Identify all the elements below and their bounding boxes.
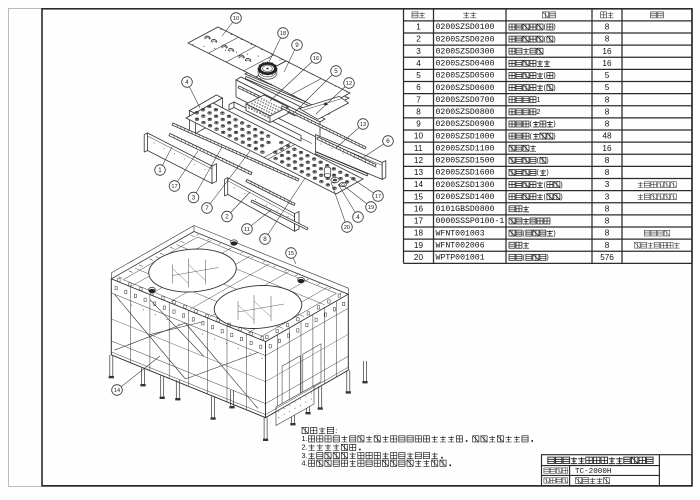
svg-text:0200SZSD0300: 0200SZSD0300 bbox=[436, 48, 495, 57]
svg-text:0200SZSD1600: 0200SZSD1600 bbox=[436, 169, 495, 178]
svg-text:0200SZSD1400: 0200SZSD1400 bbox=[436, 193, 495, 202]
svg-text:8: 8 bbox=[605, 241, 610, 250]
svg-text::: : bbox=[335, 426, 337, 435]
svg-text:8: 8 bbox=[605, 168, 610, 177]
svg-text:16: 16 bbox=[602, 144, 612, 153]
svg-text:5: 5 bbox=[334, 68, 338, 75]
svg-text:3: 3 bbox=[416, 47, 421, 56]
svg-text:): ) bbox=[553, 133, 555, 140]
svg-text:4: 4 bbox=[185, 79, 189, 86]
svg-text:8: 8 bbox=[605, 95, 610, 104]
svg-text:0200SZSD1300: 0200SZSD1300 bbox=[436, 181, 495, 190]
svg-text:11: 11 bbox=[244, 227, 250, 233]
svg-text:19: 19 bbox=[414, 241, 424, 250]
svg-text:0200SZSD0900: 0200SZSD0900 bbox=[436, 120, 495, 129]
svg-text:1: 1 bbox=[158, 167, 162, 174]
svg-text:): ) bbox=[553, 85, 555, 92]
svg-text:14: 14 bbox=[114, 388, 120, 394]
svg-text:): ) bbox=[546, 158, 548, 165]
svg-text:0200SZSD1500: 0200SZSD1500 bbox=[436, 157, 495, 166]
svg-text:1: 1 bbox=[537, 97, 541, 104]
svg-text:10: 10 bbox=[414, 132, 424, 141]
svg-text:3: 3 bbox=[192, 195, 196, 202]
svg-text:2: 2 bbox=[416, 35, 421, 44]
svg-text:): ) bbox=[560, 194, 562, 201]
svg-text:): ) bbox=[560, 182, 562, 189]
svg-text:13: 13 bbox=[414, 168, 424, 177]
svg-text:): ) bbox=[546, 170, 548, 177]
svg-text:0000SSSP0100-1: 0000SSSP0100-1 bbox=[436, 217, 505, 226]
svg-text:4.: 4. bbox=[302, 459, 308, 468]
svg-text:4: 4 bbox=[356, 214, 360, 221]
svg-text:0200SZSD0200: 0200SZSD0200 bbox=[436, 35, 495, 44]
svg-text:): ) bbox=[553, 73, 555, 80]
svg-text:16: 16 bbox=[602, 47, 612, 56]
svg-text:48: 48 bbox=[602, 132, 612, 141]
svg-text:0200SZSD1100: 0200SZSD1100 bbox=[436, 144, 495, 153]
svg-text:3: 3 bbox=[605, 192, 610, 201]
svg-text:WFNT002006: WFNT002006 bbox=[436, 241, 485, 250]
svg-text:): ) bbox=[553, 121, 555, 128]
svg-text:19: 19 bbox=[368, 205, 374, 211]
svg-text:): ) bbox=[553, 36, 555, 43]
svg-text:): ) bbox=[546, 255, 548, 262]
svg-text:0101GBSD0800: 0101GBSD0800 bbox=[436, 205, 495, 214]
svg-text:9: 9 bbox=[416, 120, 421, 129]
svg-text:16: 16 bbox=[313, 56, 319, 62]
svg-text:5: 5 bbox=[605, 83, 610, 92]
svg-text:8: 8 bbox=[605, 156, 610, 165]
svg-text:8: 8 bbox=[605, 229, 610, 238]
svg-text:8: 8 bbox=[605, 205, 610, 214]
svg-text:8: 8 bbox=[605, 120, 610, 129]
svg-text:): ) bbox=[553, 24, 555, 31]
svg-text:17: 17 bbox=[171, 184, 177, 190]
svg-text:6: 6 bbox=[386, 138, 390, 145]
svg-text:0200SZSD0800: 0200SZSD0800 bbox=[436, 108, 495, 117]
svg-text:0200SZSD0400: 0200SZSD0400 bbox=[436, 60, 495, 69]
svg-text:7: 7 bbox=[205, 205, 209, 212]
svg-text:7: 7 bbox=[416, 95, 421, 104]
svg-text:5: 5 bbox=[605, 71, 610, 80]
svg-text:10: 10 bbox=[233, 16, 239, 22]
svg-text:9: 9 bbox=[295, 42, 299, 49]
svg-text:8: 8 bbox=[605, 35, 610, 44]
svg-text:18: 18 bbox=[280, 31, 286, 37]
svg-text:8: 8 bbox=[605, 217, 610, 226]
svg-text:20: 20 bbox=[414, 253, 424, 262]
svg-text:4: 4 bbox=[416, 59, 421, 68]
svg-text:0200SZSD0100: 0200SZSD0100 bbox=[436, 23, 495, 32]
svg-text:0200SZSD1000: 0200SZSD1000 bbox=[436, 132, 495, 141]
svg-text:15: 15 bbox=[288, 251, 294, 257]
svg-text:12: 12 bbox=[414, 156, 424, 165]
svg-text:18: 18 bbox=[414, 229, 424, 238]
svg-text:12: 12 bbox=[346, 81, 352, 87]
svg-text:576: 576 bbox=[600, 253, 614, 262]
svg-text:0200SZSD0700: 0200SZSD0700 bbox=[436, 96, 495, 105]
svg-text:WFNT001003: WFNT001003 bbox=[436, 229, 485, 238]
svg-text:1: 1 bbox=[416, 23, 421, 32]
svg-text:TC-2000H: TC-2000H bbox=[575, 468, 611, 476]
svg-text:0200SZSD0600: 0200SZSD0600 bbox=[436, 84, 495, 93]
svg-text:20: 20 bbox=[344, 225, 350, 231]
svg-text:8: 8 bbox=[605, 108, 610, 117]
svg-text:3: 3 bbox=[605, 180, 610, 189]
svg-text:5: 5 bbox=[416, 71, 421, 80]
svg-text:8: 8 bbox=[263, 236, 267, 243]
svg-text:6: 6 bbox=[416, 83, 421, 92]
svg-text:16: 16 bbox=[414, 205, 424, 214]
svg-text:8: 8 bbox=[416, 108, 421, 117]
svg-text:): ) bbox=[553, 230, 555, 237]
svg-text:8: 8 bbox=[605, 23, 610, 32]
svg-text:13: 13 bbox=[360, 122, 366, 128]
svg-text:17: 17 bbox=[375, 194, 381, 200]
svg-text:16: 16 bbox=[602, 59, 612, 68]
svg-text:2: 2 bbox=[225, 214, 229, 221]
svg-text:0200SZSD0500: 0200SZSD0500 bbox=[436, 72, 495, 81]
svg-text:15: 15 bbox=[414, 192, 424, 201]
svg-text:17: 17 bbox=[414, 217, 424, 226]
svg-text:11: 11 bbox=[414, 144, 423, 153]
svg-text:2: 2 bbox=[537, 109, 541, 116]
svg-text:14: 14 bbox=[414, 180, 424, 189]
svg-text:WPTP001001: WPTP001001 bbox=[436, 254, 485, 263]
